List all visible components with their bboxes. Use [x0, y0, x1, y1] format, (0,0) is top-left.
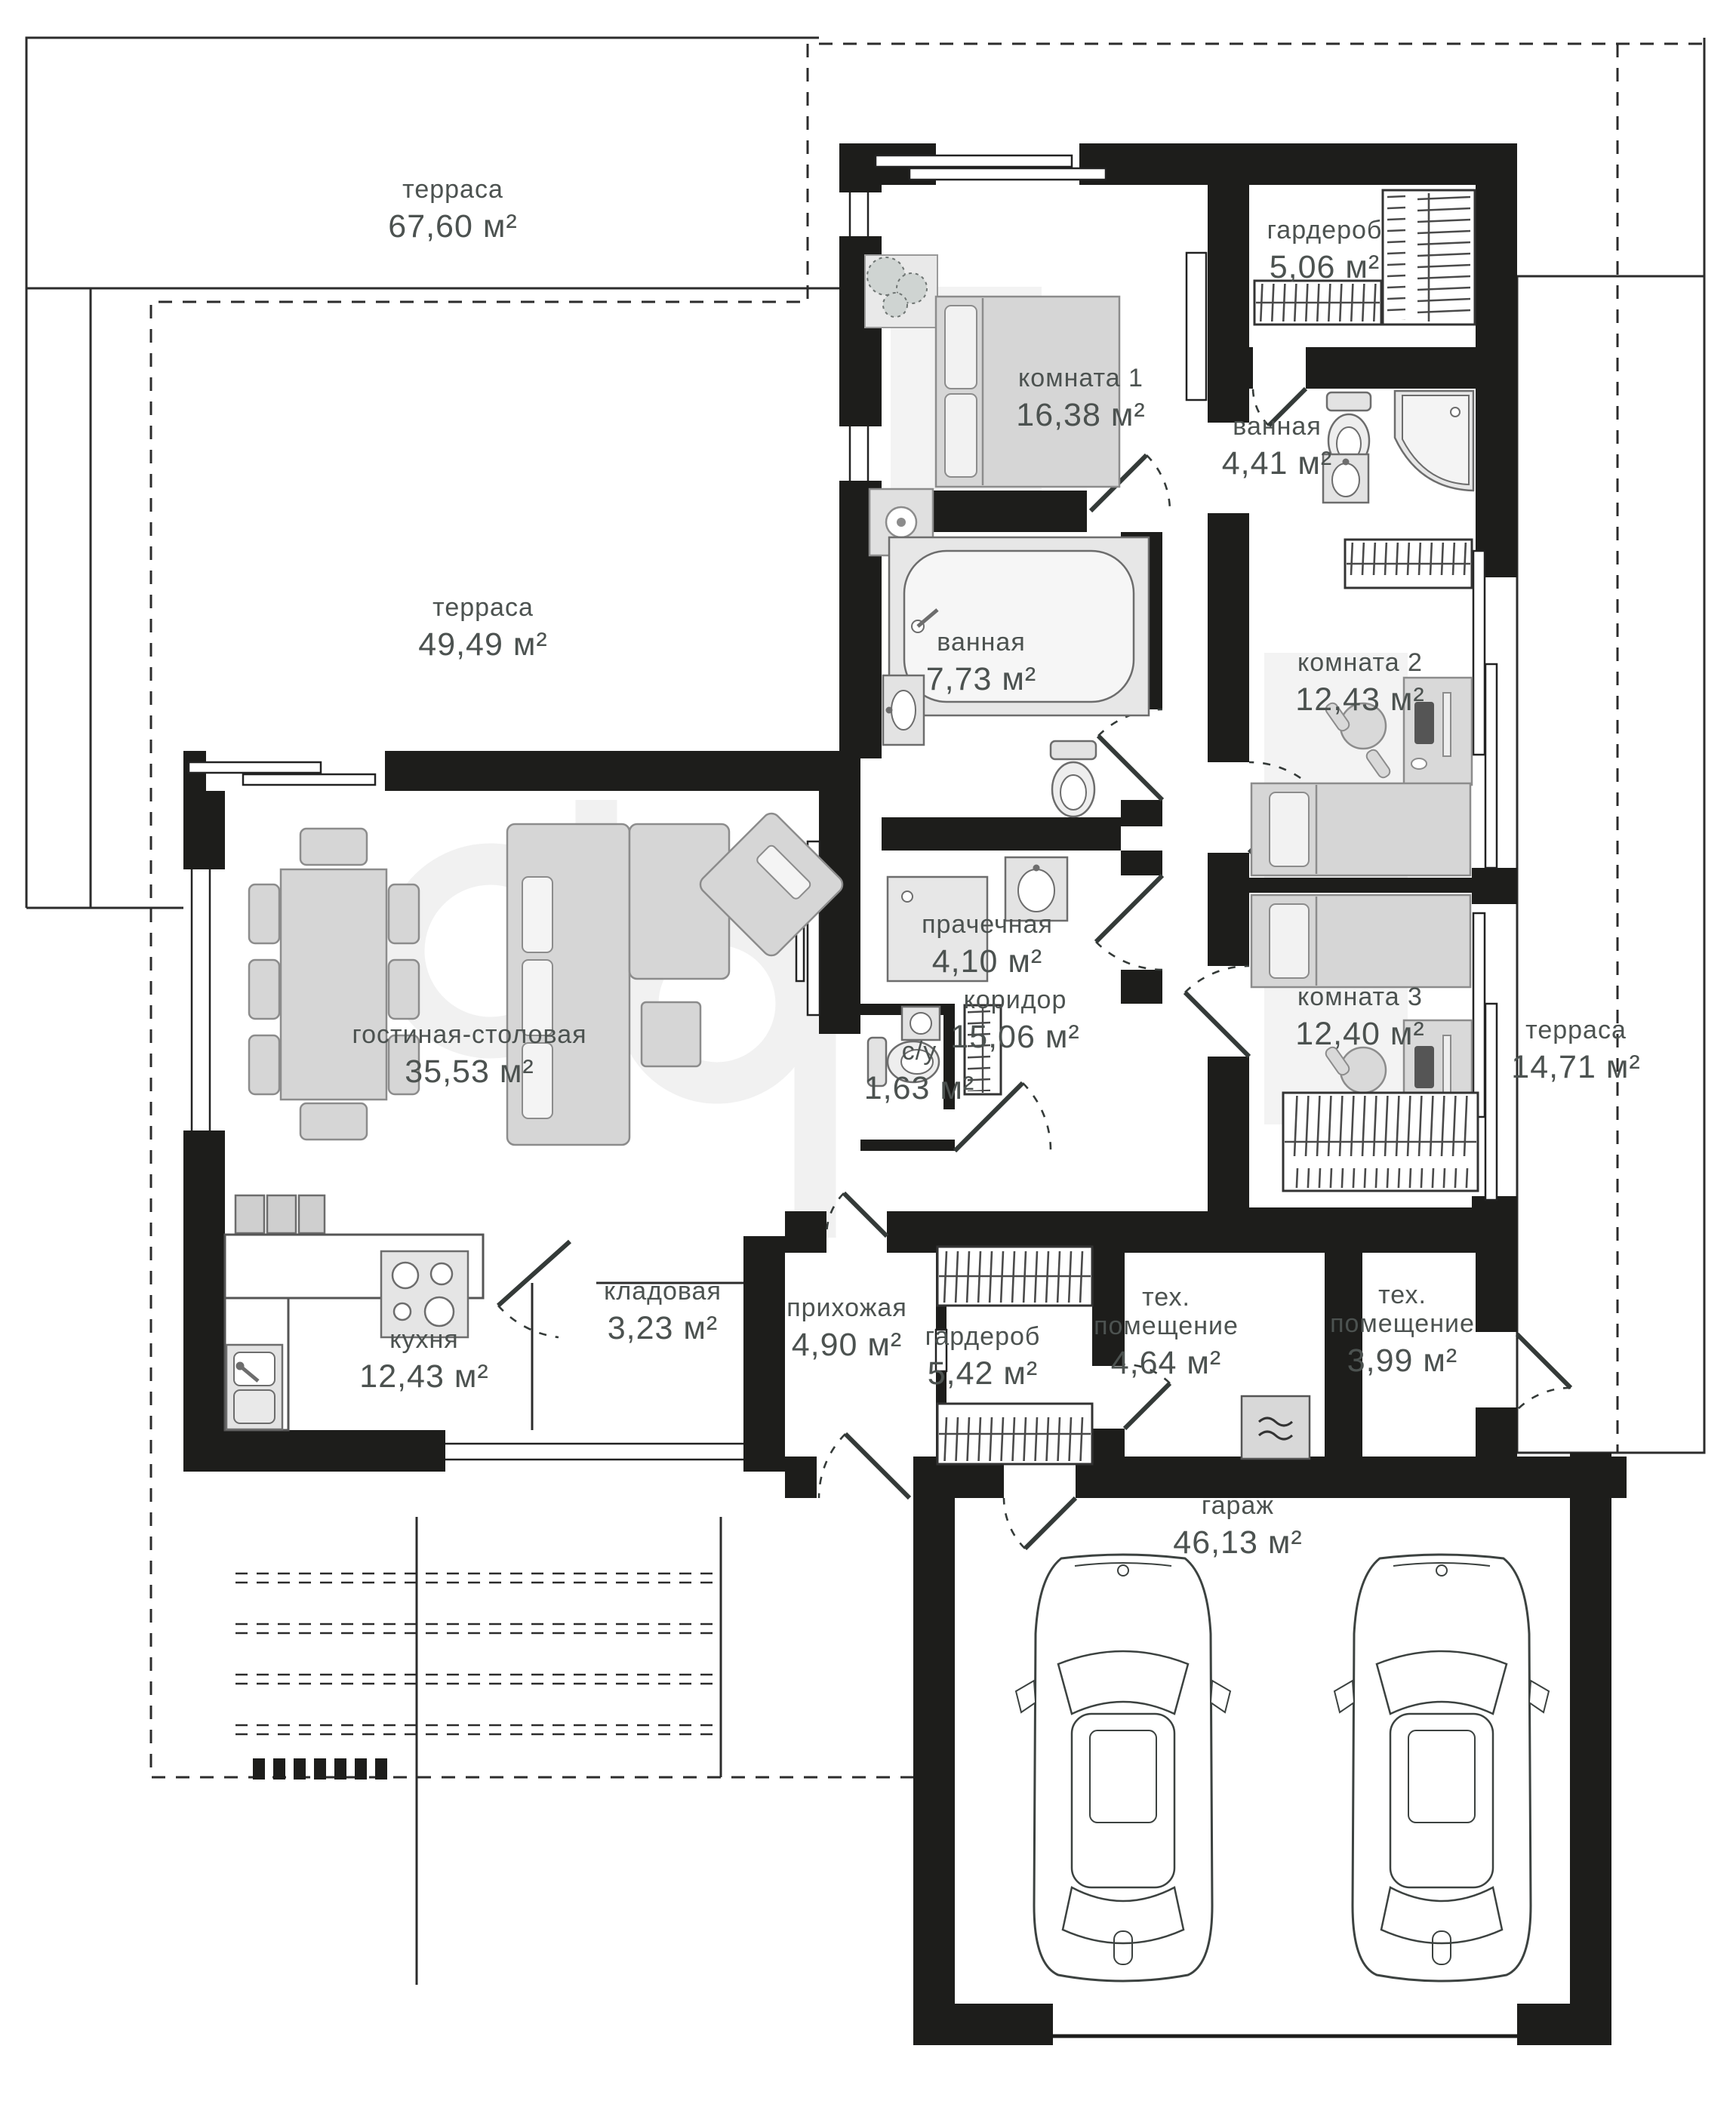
keyboard	[1414, 702, 1434, 744]
car-right	[1334, 1555, 1549, 1981]
bed3	[1251, 895, 1470, 987]
stove	[381, 1251, 468, 1337]
water-heater	[1242, 1396, 1310, 1459]
floor-plan-drawing	[0, 0, 1736, 2101]
corridor-rack	[965, 1005, 1001, 1094]
car-left	[1016, 1555, 1230, 1981]
kitchen-furniture	[225, 1195, 483, 1430]
terrace-steps	[235, 1573, 717, 1734]
kitchen-sink	[226, 1345, 282, 1429]
wc-fixtures	[868, 1007, 940, 1086]
bed2	[1251, 783, 1470, 875]
toilet-tank	[1051, 741, 1096, 759]
wardrobe2-racks	[937, 1247, 1092, 1464]
dining-table	[281, 869, 386, 1100]
washer	[888, 877, 987, 981]
bathroom1-fixtures	[1323, 391, 1473, 503]
pantry-outline	[532, 1283, 743, 1430]
laundry-fixtures	[888, 857, 1067, 981]
dining-table-set	[249, 829, 419, 1140]
bathroom2-fixtures	[883, 537, 1149, 817]
desk	[1404, 678, 1472, 785]
wardrobe1-racks	[1254, 190, 1475, 325]
floor-plan-page: терраса67,60 м² терраса49,49 м² гардероб…	[0, 0, 1736, 2101]
coffee-table	[642, 1002, 700, 1066]
monitor	[1443, 693, 1451, 756]
keyboard	[1414, 1046, 1434, 1088]
monitor	[1443, 1035, 1451, 1099]
garage-cars	[1016, 1555, 1549, 1981]
